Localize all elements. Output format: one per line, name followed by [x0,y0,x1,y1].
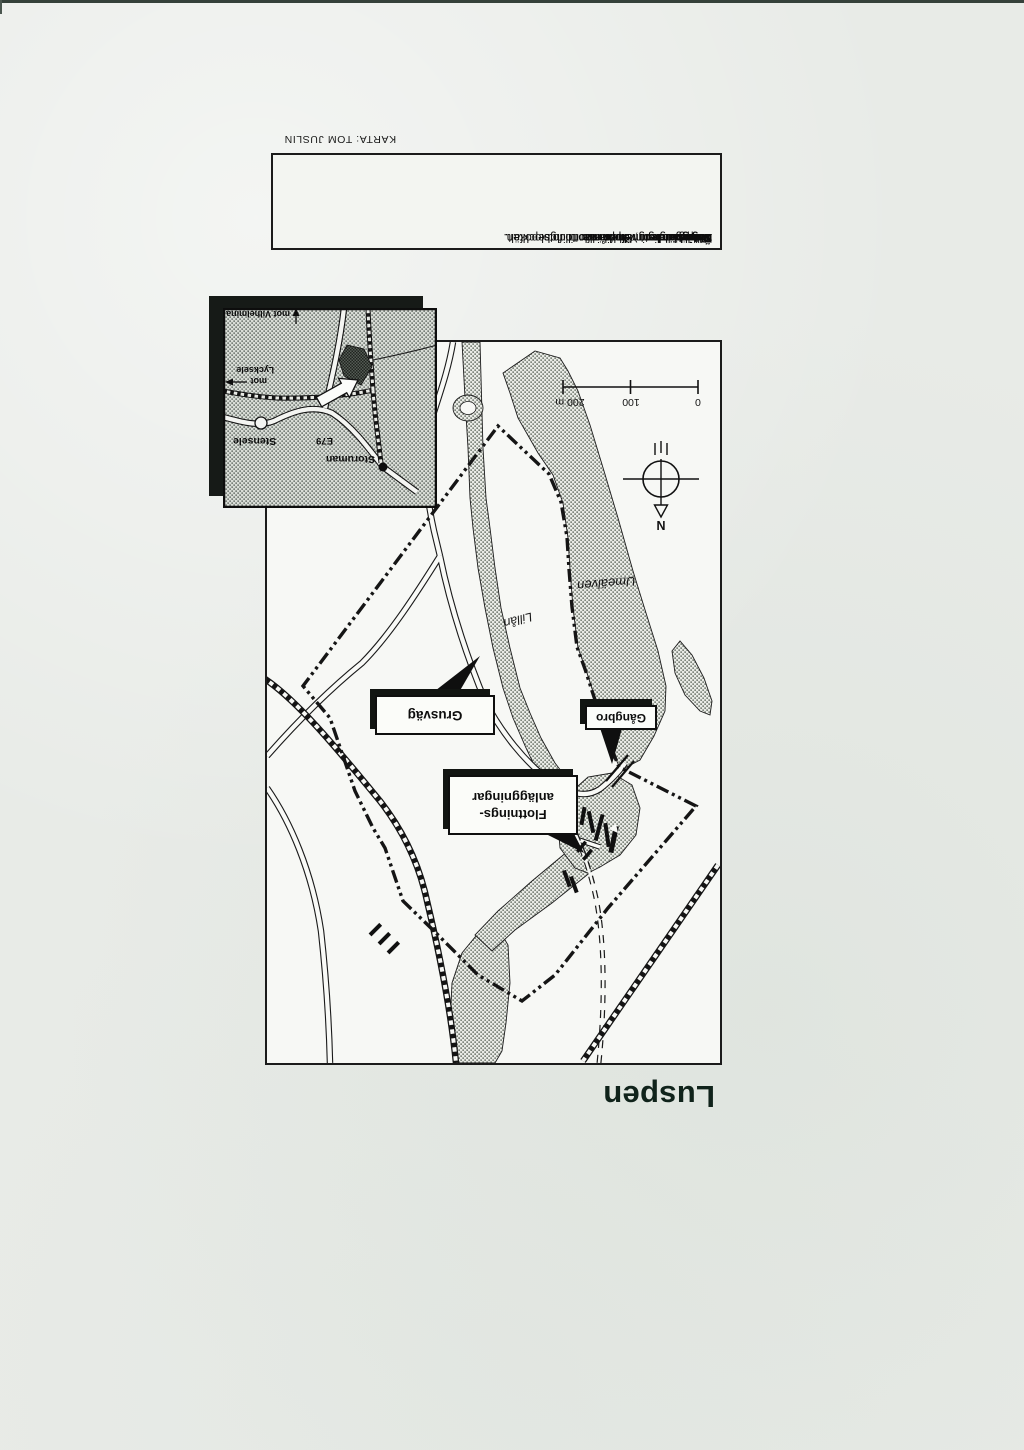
inset-map: Storuman E79 Stensele mot Lycksele mot V… [223,308,437,508]
callout-gravel-road: Grusväg [375,695,495,735]
inset-background [223,308,437,508]
inset-roundabout [255,417,267,429]
callout-flottning: Flottnings- anläggningar [448,775,578,835]
inset-map-svg: Storuman E79 Stensele mot Lycksele mot V… [223,308,437,508]
callout-footbridge: Gångbro [585,705,657,730]
page-title: Luspen [415,1074,715,1114]
river-small-label: Lillån [502,610,534,631]
inset-village-label: Stensele [233,435,276,447]
scale-bar [563,380,698,394]
scale-labels: 0 100 200 m [555,396,701,408]
callout-footbridge-label: Gångbro [596,711,646,725]
map-credit: KARTA: TOM JUSLIN [284,133,480,145]
scale-0: 0 [695,396,701,408]
callout-gravel-road-label: Grusväg [408,708,463,723]
river-finger-shape [672,641,712,715]
bay-shape [450,928,510,1063]
inset-town-dot [379,463,388,472]
document-rotated-180: Luspen [210,126,725,1116]
compass-north-label: N [656,518,665,532]
scale-100: 100 [622,396,640,408]
callout-flottning-line2: anläggningar [450,789,576,806]
scale-200: 200 m [555,396,584,408]
small-lake-island [460,402,476,415]
inset-dir-east-word: mot [251,376,268,386]
compass-icon: N [623,441,699,532]
scan-edge-corner [0,0,2,14]
scan-edge [0,0,1024,3]
callout-flottning-line1: Flottnings- [450,806,576,823]
inset-town-label: Storuman [326,453,375,465]
inset-dir-north-label: mot Vilhelmina [225,309,290,319]
inset-road-label: E79 [316,435,333,446]
info-value: Lättillgängligt med bil eller till fots. [541,230,712,243]
inset-dir-east-name: Lycksele [236,365,274,375]
info-table: Namn: Luspen Läge: 1 km söder om Storuma… [271,153,722,250]
